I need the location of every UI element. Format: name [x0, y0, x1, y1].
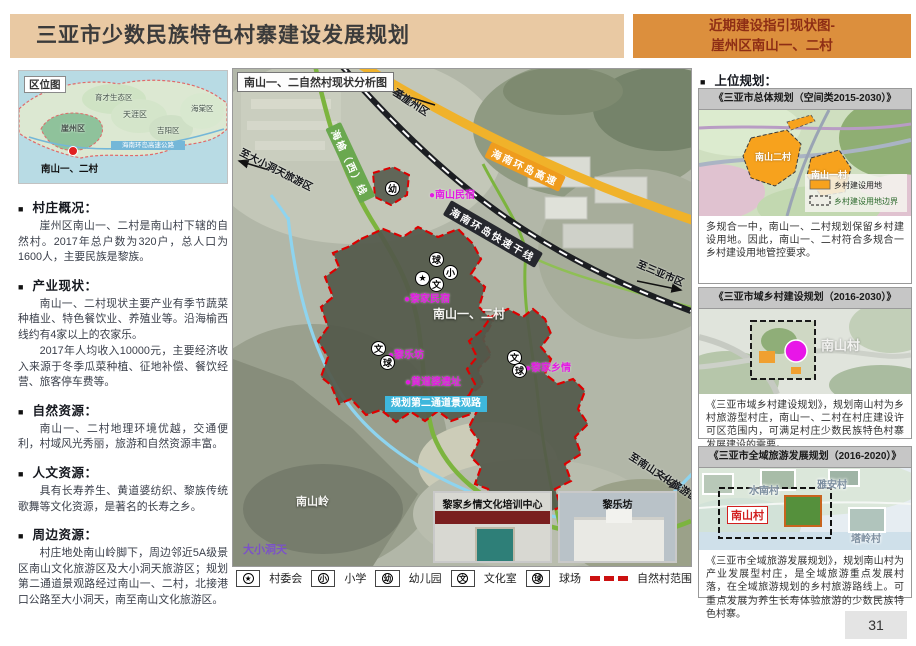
photo-caption: 黎家乡情文化培训中心 — [435, 496, 550, 511]
legend-ball-court: 球 — [526, 570, 550, 587]
bullet-icon: ■ — [700, 77, 705, 87]
plan-label-nanshan2: 南山二村 — [755, 150, 791, 163]
header-tag-bar: 近期建设指引现状图- 崖州区南山一、二村 — [633, 14, 911, 58]
location-map: 区位图 育才生态区 崖州区 天涯区 吉阳区 海棠区 海南环岛高速公路 南山一、二… — [18, 70, 228, 184]
plan-label-talingcun: 塔岭村 — [851, 530, 881, 545]
poi-lijia-xiangqing: ●黎家乡情 — [525, 359, 571, 374]
minimap-highway-label: 海南环岛高速公路 — [111, 141, 185, 150]
header-tag-line2: 崖州区南山一、二村 — [633, 36, 911, 56]
photo-caption: 黎乐坊 — [560, 496, 675, 511]
location-map-label: 区位图 — [24, 76, 66, 93]
section-header-surroundings: ■ 周边资源： — [18, 524, 228, 543]
photo-banner — [435, 511, 550, 524]
section-paragraph: 村庄地处南山岭脚下，周边邻近5A级景区南山文化旅游区及大小洞天旅游区；规划第二通… — [18, 546, 228, 608]
header-tag-line1: 近期建设指引现状图- — [633, 16, 911, 36]
bullet-icon: ■ — [18, 282, 23, 292]
minimap-village-marker-label: 南山一、二村 — [41, 161, 98, 175]
culture-room-icon: 文 — [429, 277, 444, 292]
page-number: 31 — [845, 611, 907, 639]
section-header-culture: ■ 人文资源： — [18, 462, 228, 481]
left-text-panel: ■ 村庄概况： 崖州区南山一、二村是南山村下辖的自然村。2017年总户数为320… — [18, 188, 228, 609]
plan-label-shuinancun: 水南村 — [749, 482, 779, 497]
section-paragraph: 南山一、二村现状主要产业有季节蔬菜种植业、特色餐饮业、养殖业等。沿海榆西线约有4… — [18, 297, 228, 344]
section-paragraph: 南山一、二村地理环境优越，交通便利，村域风光秀丽，旅游和自然资源丰富。 — [18, 422, 228, 453]
plan-map-rural: 南山村 — [699, 309, 911, 394]
bullet-icon: ■ — [18, 469, 23, 479]
plan-label-yaancun: 雅安村 — [817, 476, 847, 491]
plan-box-master-plan: 《三亚市总体规划（空间类2015-2030）》 南山二村 南山一村 乡村建设用地… — [698, 88, 912, 284]
plan-box-title: 《三亚市总体规划（空间类2015-2030）》 — [699, 89, 911, 110]
section-header-industry: ■ 产业现状： — [18, 275, 228, 294]
bullet-icon: ■ — [18, 531, 23, 541]
plan-box-text: 多规合一中，南山一、二村规划保留乡村建设用地。因此，南山一、二村符合多规合一乡村… — [699, 216, 911, 265]
plan-box-rural-construction: 《三亚市域乡村建设规划（2016-2030）》 南山村 《三亚市域乡村建设规划》… — [698, 287, 912, 439]
plan-map-master: 南山二村 南山一村 乡村建设用地 乡村建设用地边界 — [699, 110, 911, 216]
plan-label-nanshancun: 南山村 — [821, 335, 860, 354]
legend-culture-room: 文 — [451, 570, 475, 587]
planned-road-label: 规划第二通道景观路 — [385, 396, 487, 412]
photo-training-center: 黎家乡情文化培训中心 — [433, 491, 552, 563]
plan-map-rural-graphic — [699, 309, 911, 394]
section-header-nature: ■ 自然资源： — [18, 400, 228, 419]
map-title: 南山一、二自然村现状分析图 — [237, 72, 394, 92]
plan-box-title: 《三亚市全域旅游发展规划（2016-2020）》 — [699, 447, 911, 468]
primary-school-icon: 小 — [443, 265, 458, 280]
section-paragraph: 崖州区南山一、二村是南山村下辖的自然村。2017年总户数为320户，总人口为16… — [18, 219, 228, 266]
plan-legend-construction-land: 乡村建设用地 — [834, 180, 882, 191]
page-title: 三亚市少数民族特色村寨建设发展规划 — [10, 14, 624, 58]
legend-kindergarten: 幼 — [375, 570, 399, 587]
status-map: 南山一、二自然村现状分析图 海南环岛高速 海榆（西）线 海南环岛快速干线 规划第… — [232, 68, 692, 567]
legend-boundary-swatch — [590, 576, 628, 581]
district-tianya: 天涯区 — [123, 109, 147, 120]
ball-court-icon: 球 — [380, 355, 395, 370]
header-title-bar: 三亚市少数民族特色村寨建设发展规划 — [10, 14, 624, 58]
district-yucai: 育才生态区 — [95, 92, 133, 103]
district-haitang: 海棠区 — [191, 103, 214, 114]
village-name-label: 南山一、二村 — [433, 305, 505, 322]
ball-court-icon: 球 — [512, 363, 527, 378]
photo-lilefang: 黎乐坊 — [558, 491, 677, 563]
culture-room-icon: 文 — [371, 341, 386, 356]
bullet-icon: ■ — [18, 204, 23, 214]
legend-primary-school: 小 — [311, 570, 335, 587]
plan-legend-construction-boundary: 乡村建设用地边界 — [834, 196, 898, 207]
village-committee-icon: ★ — [415, 271, 430, 286]
district-jiyang: 吉阳区 — [157, 125, 180, 136]
plan-box-tourism: 《三亚市全域旅游发展规划（2016-2020）》 水南村 雅安村 南山村 塔岭村… — [698, 446, 912, 598]
poi-lijia-homestay: ●黎家民宿 — [404, 290, 450, 305]
ball-court-icon: 球 — [429, 252, 444, 267]
photo-door — [475, 527, 515, 563]
mountain-name-label: 南山岭 — [296, 493, 329, 509]
map-legend: ★ 村委会 小 小学 幼 幼儿园 文 文化室 球 球场 自然村范围 — [236, 568, 692, 588]
scenic-name-label: 大小洞天 — [243, 541, 287, 557]
district-yazhou: 崖州区 — [61, 123, 85, 134]
photo-building — [574, 517, 664, 563]
section-paragraph: 2017年人均收入10000元，主要经济收入来源于冬季瓜菜种植、征地补偿、餐饮经… — [18, 344, 228, 391]
section-paragraph: 具有长寿养生、黄道婆纺织、黎族传统歌舞等文化资源，是著名的长寿之乡。 — [18, 484, 228, 515]
bullet-icon: ■ — [18, 407, 23, 417]
poi-nanshan-homestay: ●南山民宿 — [429, 186, 475, 201]
plan-map-tourism: 水南村 雅安村 南山村 塔岭村 — [699, 468, 911, 550]
plan-box-title: 《三亚市域乡村建设规划（2016-2030）》 — [699, 288, 911, 309]
section-header-overview: ■ 村庄概况： — [18, 197, 228, 216]
plan-label-nanshancun-highlight: 南山村 — [727, 506, 768, 524]
poi-huangdaopo-site: ●黄道婆遗址 — [405, 373, 461, 388]
photo-building-tower — [606, 509, 632, 523]
kindergarten-icon: 幼 — [385, 181, 400, 196]
legend-village-committee: ★ — [236, 570, 260, 587]
upper-plans-heading: ■ 上位规划： — [700, 70, 777, 89]
